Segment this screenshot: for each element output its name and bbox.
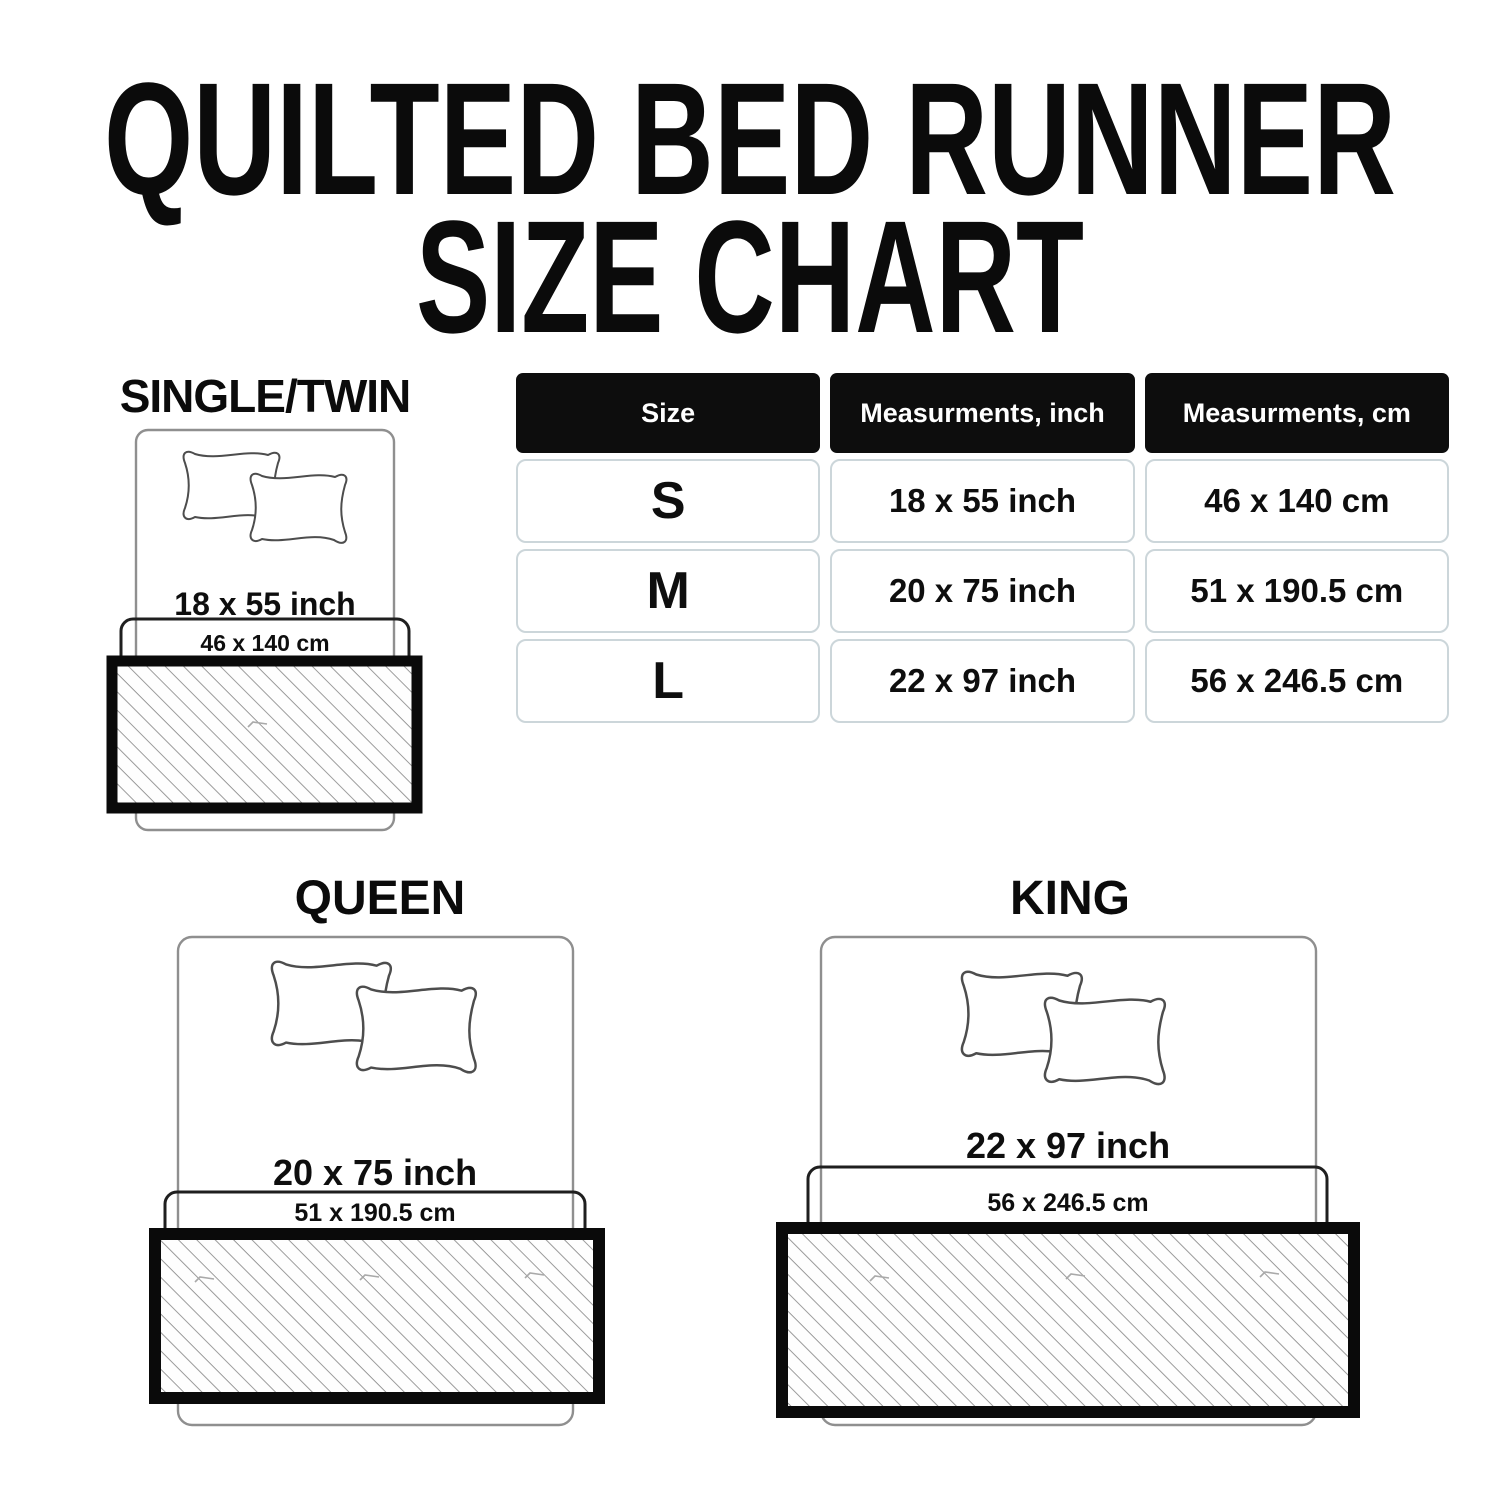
table-header-size: Size bbox=[516, 373, 820, 453]
table-cell-m-cm: 51 x 190.5 cm bbox=[1145, 549, 1449, 633]
king-heading: KING bbox=[770, 871, 1370, 926]
pillow-right-icon bbox=[251, 474, 347, 543]
single-quilted-runner bbox=[112, 661, 417, 808]
page-title: QUILTED BED RUNNER SIZE CHART bbox=[0, 36, 1500, 348]
king-cm-label: 56 x 246.5 cm bbox=[987, 1189, 1148, 1217]
table-cell-size-l: L bbox=[516, 639, 820, 723]
size-table: Size Measurments, inch Measurments, cm S… bbox=[516, 373, 1449, 723]
pillow-right-icon bbox=[357, 987, 476, 1073]
table-cell-l-inch: 22 x 97 inch bbox=[830, 639, 1134, 723]
single-twin-heading: SINGLE/TWIN bbox=[90, 369, 440, 423]
table-header-inch: Measurments, inch bbox=[830, 373, 1134, 453]
pillow-right-icon bbox=[1045, 998, 1165, 1084]
queen-quilted-runner bbox=[155, 1234, 599, 1398]
table-cell-s-inch: 18 x 55 inch bbox=[830, 459, 1134, 543]
table-cell-size-m: M bbox=[516, 549, 820, 633]
table-header-cm: Measurments, cm bbox=[1145, 373, 1449, 453]
single-twin-diagram: 18 x 55 inch 46 x 140 cm bbox=[90, 425, 440, 880]
king-inch-label: 22 x 97 inch bbox=[966, 1125, 1170, 1166]
table-cell-size-s: S bbox=[516, 459, 820, 543]
table-cell-m-inch: 20 x 75 inch bbox=[830, 549, 1134, 633]
table-cell-l-cm: 56 x 246.5 cm bbox=[1145, 639, 1449, 723]
size-chart-infographic: QUILTED BED RUNNER SIZE CHART SINGLE/TWI… bbox=[0, 0, 1500, 1500]
king-diagram: 22 x 97 inch 56 x 246.5 cm bbox=[770, 925, 1370, 1430]
single-inch-label: 18 x 55 inch bbox=[174, 586, 355, 622]
king-quilted-runner bbox=[782, 1228, 1354, 1412]
queen-heading: QUEEN bbox=[140, 871, 620, 926]
queen-cm-label: 51 x 190.5 cm bbox=[294, 1199, 455, 1227]
queen-inch-label: 20 x 75 inch bbox=[273, 1152, 477, 1193]
queen-diagram: 20 x 75 inch 51 x 190.5 cm bbox=[140, 925, 620, 1430]
title-line-2: SIZE CHART bbox=[416, 187, 1084, 348]
table-cell-s-cm: 46 x 140 cm bbox=[1145, 459, 1449, 543]
single-cm-label: 46 x 140 cm bbox=[200, 630, 329, 656]
